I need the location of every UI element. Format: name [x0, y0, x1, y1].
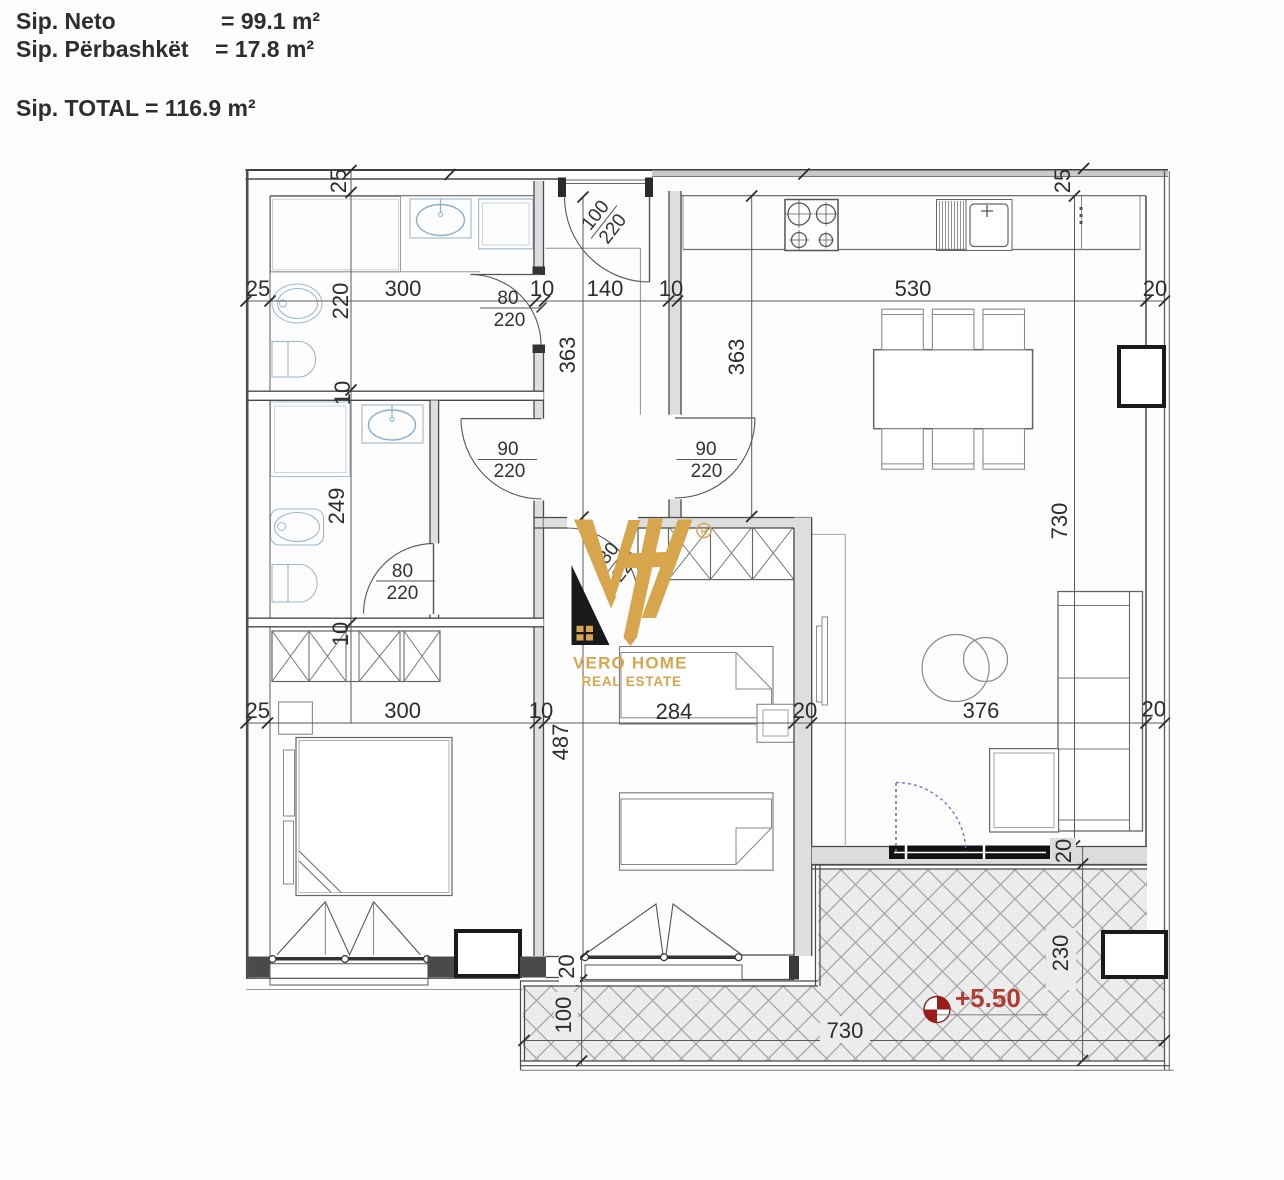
svg-text:487: 487 — [548, 724, 573, 761]
svg-text:VERO HOME: VERO HOME — [573, 654, 688, 673]
svg-text:363: 363 — [724, 339, 749, 376]
svg-text:730: 730 — [1047, 503, 1072, 540]
svg-text:376: 376 — [963, 698, 1000, 723]
svg-text:20: 20 — [1143, 276, 1167, 301]
svg-text:+5.50: +5.50 — [955, 983, 1021, 1013]
svg-text:Sip. Përbashkët: Sip. Përbashkët — [16, 36, 189, 62]
svg-text:220: 220 — [387, 583, 419, 604]
svg-text:90: 90 — [695, 439, 716, 460]
svg-text:300: 300 — [385, 276, 422, 301]
svg-text:R: R — [701, 527, 708, 537]
svg-text:25: 25 — [326, 169, 351, 193]
svg-text:80: 80 — [392, 561, 413, 582]
svg-text:300: 300 — [384, 698, 421, 723]
svg-text:90: 90 — [497, 439, 518, 460]
svg-text:25: 25 — [1050, 169, 1075, 193]
svg-text:Sip. TOTAL = 116.9 m²: Sip. TOTAL = 116.9 m² — [16, 95, 256, 121]
svg-text:730: 730 — [827, 1018, 864, 1043]
svg-text:220: 220 — [691, 461, 723, 482]
svg-text:530: 530 — [895, 276, 932, 301]
svg-text:= 99.1 m²: = 99.1 m² — [221, 8, 320, 34]
svg-text:20: 20 — [793, 698, 817, 723]
svg-text:10: 10 — [330, 381, 355, 405]
svg-text:220: 220 — [494, 310, 526, 331]
svg-text:REAL ESTATE: REAL ESTATE — [582, 674, 682, 689]
svg-text:Sip. Neto: Sip. Neto — [16, 8, 116, 34]
svg-text:249: 249 — [324, 488, 349, 525]
svg-text:100: 100 — [551, 997, 576, 1034]
svg-text:= 17.8 m²: = 17.8 m² — [215, 36, 314, 62]
svg-text:230: 230 — [1048, 935, 1073, 972]
svg-text:284: 284 — [656, 699, 693, 724]
svg-text:363: 363 — [555, 337, 580, 374]
svg-text:20: 20 — [554, 954, 579, 978]
svg-text:220: 220 — [328, 283, 353, 320]
svg-text:220: 220 — [494, 461, 526, 482]
svg-text:10: 10 — [328, 622, 353, 646]
svg-text:10: 10 — [530, 276, 554, 301]
svg-text:80: 80 — [497, 288, 518, 309]
svg-text:25: 25 — [246, 276, 270, 301]
svg-text:10: 10 — [529, 698, 553, 723]
svg-text:140: 140 — [587, 276, 624, 301]
svg-text:25: 25 — [245, 698, 269, 723]
svg-text:20: 20 — [1141, 697, 1165, 722]
svg-text:20: 20 — [1051, 839, 1076, 863]
svg-text:10: 10 — [659, 276, 683, 301]
